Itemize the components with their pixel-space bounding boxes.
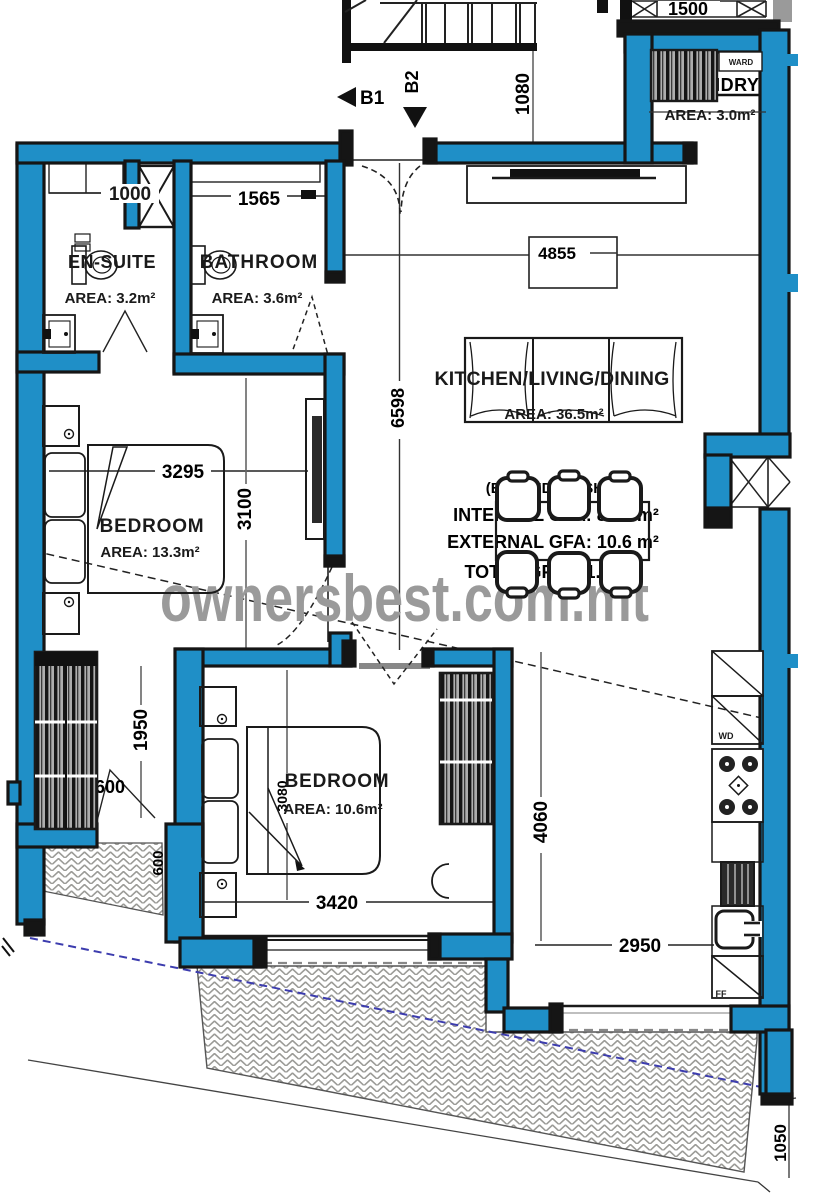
svg-text:B1: B1 xyxy=(360,88,385,109)
svg-text:BEDROOM: BEDROOM xyxy=(100,516,205,537)
svg-text:600: 600 xyxy=(95,777,125,797)
svg-text:1950: 1950 xyxy=(131,709,152,751)
svg-text:EXTERNAL GFA: 10.6 m²: EXTERNAL GFA: 10.6 m² xyxy=(447,532,659,552)
svg-text:1080: 1080 xyxy=(513,73,534,115)
svg-text:WD: WD xyxy=(719,731,734,741)
svg-text:1500: 1500 xyxy=(668,0,708,19)
svg-text:4855: 4855 xyxy=(538,244,576,263)
svg-text:FF: FF xyxy=(716,989,727,999)
svg-text:AREA: 3.2m²: AREA: 3.2m² xyxy=(65,290,156,307)
svg-text:1565: 1565 xyxy=(238,189,281,210)
svg-text:3295: 3295 xyxy=(162,462,205,483)
svg-text:2950: 2950 xyxy=(619,936,661,957)
svg-text:3100: 3100 xyxy=(235,488,256,530)
svg-text:AREA: 13.3m²: AREA: 13.3m² xyxy=(100,544,199,561)
svg-text:WARD: WARD xyxy=(729,58,754,67)
svg-text:3420: 3420 xyxy=(316,893,358,914)
svg-text:1050: 1050 xyxy=(771,1124,790,1162)
svg-text:BATHROOM: BATHROOM xyxy=(200,252,318,273)
svg-text:AREA: 3.6m²: AREA: 3.6m² xyxy=(212,290,303,307)
svg-text:B2: B2 xyxy=(402,70,422,93)
svg-text:4060: 4060 xyxy=(531,801,552,843)
svg-text:AREA: 3.0m²: AREA: 3.0m² xyxy=(665,107,756,124)
svg-text:6598: 6598 xyxy=(388,388,408,428)
svg-text:AREA: 10.6m²: AREA: 10.6m² xyxy=(283,801,382,818)
svg-text:1000: 1000 xyxy=(109,184,151,205)
svg-text:BEDROOM: BEDROOM xyxy=(285,771,390,792)
svg-text:AREA: 36.5m²: AREA: 36.5m² xyxy=(504,406,603,423)
svg-text:KITCHEN/LIVING/DINING: KITCHEN/LIVING/DINING xyxy=(435,368,670,390)
